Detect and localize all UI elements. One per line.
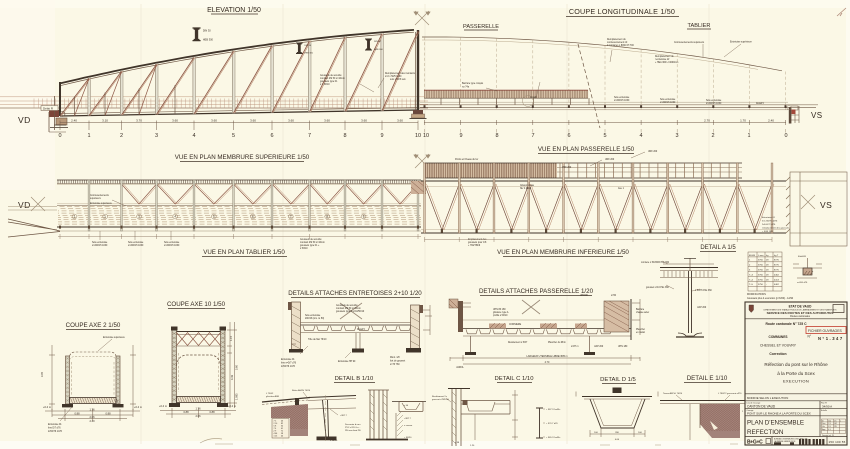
svg-text:3750: 3750 [758,260,764,262]
svg-text:+ 370 7 d76: + 370 7 d76 [546,423,558,425]
svg-text:1: 1 [87,133,90,139]
svg-text:LARGEUR UTENSIBLE LIBRE=685 m: LARGEUR UTENSIBLE LIBRE=685 m [526,355,567,358]
svg-text:EXECUTION: EXECUTION [783,379,809,384]
svg-text:s=2 x 50/5 1400: s=2 x 50/5 1400 [385,76,402,78]
svg-text:60x60/8: 60x60/8 [798,256,807,258]
svg-text:3.60: 3.60 [397,118,403,122]
svg-text:VD: VD [18,200,31,210]
svg-text:3.60: 3.60 [172,118,178,122]
svg-text:fers s=D/7 d76: fers s=D/7 d76 [281,362,297,365]
svg-text:no 74a: no 74a [462,87,470,89]
svg-text:Revêtement s 50/7: Revêtement s 50/7 [508,341,528,344]
svg-text:PVC d 110 L=...: PVC d 110 L=... [345,427,361,429]
svg-text:Contreventements: Contreventements [90,194,110,197]
svg-text:L 50/76 Pds 360: L 50/76 Pds 360 [695,290,712,292]
svg-text:DIN 30: DIN 30 [374,41,382,43]
svg-text:PLAN D’ENSEMBLE: PLAN D’ENSEMBLE [747,420,804,427]
svg-text:3.60: 3.60 [288,118,294,122]
svg-text:2.40: 2.40 [768,118,774,122]
svg-text:5: 5 [232,133,235,139]
svg-text:2.40: 2.40 [71,118,77,122]
svg-text:ELEM: ELEM [749,255,755,257]
svg-text:contreventement inf.: contreventement inf. [607,41,628,44]
svg-text:+387 7: +387 7 [404,418,412,420]
svg-text:+0.4 m: +0.4 m [134,405,142,409]
svg-text:Contreventements supérieurs: Contreventements supérieurs [674,41,705,44]
svg-text:Routes cantonales: Routes cantonales [790,315,811,318]
svg-text:UAP 200: UAP 200 [697,306,707,309]
svg-text:s=200/15 1060: s=200/15 1060 [164,245,180,247]
svg-text:UPROF: UPROF [580,295,589,297]
svg-text:s = 50/10: s = 50/10 [320,84,330,86]
svg-text:CHESSEL ET VOUVRY: CHESSEL ET VOUVRY [760,344,797,348]
svg-text:3.60: 3.60 [324,118,330,122]
svg-text:HEB 300: HEB 300 [374,49,384,51]
svg-text:VUE EN PLAN TABLIER 1/50: VUE EN PLAN TABLIER 1/50 [203,249,285,256]
svg-text:Plancher: Plancher [636,328,645,331]
svg-text:1 25: 1 25 [274,436,278,438]
svg-text:4.43: 4.43 [230,374,234,380]
svg-text:0.88: 0.88 [183,410,189,414]
svg-text:+0.4 m: +0.4 m [159,404,167,408]
svg-text:Entretoise supérieure: Entretoise supérieure [730,41,753,44]
svg-text:+ 365 74 m/Ns: + 365 74 m/Ns [546,437,561,439]
svg-text:+0.4 m: +0.4 m [228,404,236,408]
svg-text:Des: Des [822,423,825,425]
svg-text:0: 0 [58,133,61,139]
svg-text:3750: 3750 [758,284,764,286]
svg-text:App: App [822,428,825,431]
svg-text:+ HEA 300 L=4000mm: + HEA 300 L=4000mm [655,61,678,64]
svg-text:10: 10 [415,133,421,139]
svg-text:s couvre: s couvre [404,424,413,427]
svg-text:3750: 3750 [758,279,764,281]
svg-text:0.88: 0.88 [209,410,215,414]
svg-text:8: 8 [495,133,498,139]
svg-text:Sole entretoise: Sole entretoise [164,241,180,244]
svg-text:4413: 4413 [774,279,780,281]
svg-text:3.60: 3.60 [361,118,367,122]
svg-text:2x50/76 1476: 2x50/76 1476 [48,431,63,433]
svg-text:8770: 8770 [774,260,780,262]
svg-text:Entretoise HP 90: Entretoise HP 90 [338,360,356,363]
svg-text:150 100 55: 150 100 55 [829,440,846,444]
svg-text:Barrière type croquis: Barrière type croquis [462,82,484,85]
svg-text:Sole entretoise: Sole entretoise [92,241,108,244]
svg-text:Remplacement du: Remplacement du [607,38,626,41]
svg-text:Sole entretoise: Sole entretoise [128,241,144,244]
svg-text:2 cornières L 80/40 Pl 700: 2 cornières L 80/40 Pl 700 [607,44,634,47]
svg-text:2.20: 2.20 [89,419,95,423]
svg-text:FICHIER OUVRAGES: FICHIER OUVRAGES [808,329,842,333]
svg-text:HEB 300: HEB 300 [203,39,214,42]
svg-text:Entretoise 01: Entretoise 01 [48,423,62,426]
svg-text:montant 2M 50 s=10mm: montant 2M 50 s=10mm [300,241,325,244]
svg-text:montant 2M 50 s=10mm: montant 2M 50 s=10mm [336,307,361,310]
svg-text:L 750/2: L 750/2 [266,393,274,395]
svg-text:+ 784/784/9: + 784/784/9 [468,245,481,247]
svg-text:0.88: 0.88 [74,411,80,415]
svg-text:Relev ASPH 70/20: Relev ASPH 70/20 [292,389,311,392]
svg-text:COMMUNES: COMMUNES [769,335,788,339]
svg-text:200/15 (sim. to 50): 200/15 (sim. to 50) [305,317,324,320]
svg-text:s=200 d76: s=200 d76 [797,282,808,284]
svg-text:0: 0 [784,133,787,139]
svg-text:Goussets plus d exécution (pl: Goussets plus d exécution (pl 3x50) - 12… [747,297,794,300]
svg-text:Entretoise supérieure: Entretoise supérieure [90,202,113,205]
svg-text:DIN 30: DIN 30 [305,45,312,47]
svg-text:3750: 3750 [758,274,764,276]
svg-text:7: 7 [308,133,311,139]
svg-text:REFECTION: REFECTION [747,429,784,436]
svg-text:Sole entretoise: Sole entretoise [660,98,676,101]
svg-text:Axe 1: Axe 1 [618,187,625,190]
svg-text:10: 10 [423,133,429,139]
svg-text:+ 387 74 m/Ns: + 387 74 m/Ns [546,409,561,411]
svg-text:CANTON DE VAUD: CANTON DE VAUD [747,404,776,408]
svg-text:Détail 5: Détail 5 [756,102,765,105]
svg-text:Remplacement des montants: Remplacement des montants [385,72,416,75]
svg-text:3.10: 3.10 [102,118,108,122]
svg-text:Réfection du pont sur le Rhône: Réfection du pont sur le Rhône [764,362,828,367]
svg-text:URF 200: URF 200 [562,167,572,169]
svg-text:MODIFIE SELON L EXECUTION: MODIFIE SELON L EXECUTION [747,396,788,400]
svg-text:2.70: 2.70 [704,118,710,122]
svg-text:0.88: 0.88 [105,411,111,415]
svg-text:UPN 86 180: UPN 86 180 [493,309,506,311]
svg-text:goussets pour 1/8: goussets pour 1/8 [468,241,487,244]
svg-text:1.083: 1.083 [235,393,239,400]
svg-text:6: 6 [567,133,570,139]
svg-text:DETAIL B 1/10: DETAIL B 1/10 [335,376,374,382]
svg-text:s 58/20: s 58/20 [330,440,338,442]
svg-text:goussets type 01 +: goussets type 01 + [300,244,320,247]
svg-text:Tôle de flan 76/10: Tôle de flan 76/10 [308,339,327,341]
svg-text:Points et Niveau du fer: Points et Niveau du fer [455,158,478,161]
svg-text:HEB 300: HEB 300 [305,52,314,54]
svg-text:suiv s 50/5 suiv: suiv s 50/5 suiv [390,79,407,81]
svg-text:à la Porte du Scex: à la Porte du Scex [777,371,815,376]
svg-text:Route cantonale N° 725 C: Route cantonale N° 725 C [765,322,807,326]
svg-text:+ 50/5 100: + 50/5 100 [762,231,773,233]
svg-text:1: 1 [747,133,750,139]
svg-text:Goussets de sécurité: Goussets de sécurité [300,238,322,241]
svg-text:Goussets de sécurité: Goussets de sécurité [336,304,358,307]
svg-text:8770: 8770 [774,265,780,267]
svg-text:2: 2 [120,133,123,139]
svg-text:URF 200: URF 200 [605,159,615,161]
svg-text:fort de gousset: fort de gousset [390,360,406,363]
svg-text:fers D/7 d76: fers D/7 d76 [48,427,61,430]
svg-text:Détail 5: Détail 5 [357,328,366,331]
svg-text:+0.4 m: +0.4 m [43,405,51,409]
svg-text:6: 6 [270,133,273,139]
svg-text:DETAILS ATTACHES ENTRETOISES 2: DETAILS ATTACHES ENTRETOISES 2+10 1/20 [288,290,422,297]
svg-text:s=50: s=50 [611,295,617,297]
svg-text:DETAIL D 1/5: DETAIL D 1/5 [600,377,636,383]
svg-text:s=200/15 1060: s=200/15 1060 [660,102,676,104]
svg-text:1.15: 1.15 [229,335,233,341]
svg-text:Goussets de sécurité: Goussets de sécurité [320,74,342,77]
svg-text:supérieurs: supérieurs [90,197,102,200]
svg-text:DETAIL C 1/10: DETAIL C 1/10 [495,376,535,382]
svg-text:Sole entretoise: Sole entretoise [614,96,630,99]
svg-text:goussets type A s=10/50/10: goussets type A s=10/50/10 [336,310,365,313]
svg-text:VUE EN PLAN MEMBRURE INFERIEUR: VUE EN PLAN MEMBRURE INFERIEURE 1/50 [497,249,629,256]
svg-text:Entretoise 01: Entretoise 01 [281,358,295,361]
svg-text:7: 7 [531,133,534,139]
svg-text:+387 7: +387 7 [340,415,348,417]
svg-text:TABLIER: TABLIER [688,23,711,29]
svg-text:2x50/76 1476: 2x50/76 1476 [281,366,296,368]
svg-text:3.05: 3.05 [40,371,44,377]
svg-text:4.70: 4.70 [545,361,550,364]
svg-text:Plancher du Rhin: Plancher du Rhin [548,341,566,344]
svg-text:montant 2M 50 s=10mm: montant 2M 50 s=10mm [320,77,345,80]
svg-text:goussets type 01: goussets type 01 [320,80,338,83]
svg-text:VUE EN PLAN MEMBRURE SUPERIEUR: VUE EN PLAN MEMBRURE SUPERIEURE 1/50 [175,154,310,161]
svg-text:3750: 3750 [758,265,764,267]
svg-text:l entretoise inf: l entretoise inf [655,58,670,61]
svg-text:Vu: Vu [834,420,836,422]
svg-text:2.9: 2.9 [828,423,830,425]
svg-text:Débit R: Débit R [43,107,54,111]
svg-text:Ver: Ver [822,425,825,428]
svg-text:3.60: 3.60 [250,118,256,122]
svg-text:1.70: 1.70 [740,118,746,122]
svg-text:5.60: 5.60 [235,364,239,370]
svg-text:s=200/15 1060: s=200/15 1060 [614,100,630,102]
svg-text:Descente d eau: Descente d eau [345,423,361,426]
svg-text:URF 200: URF 200 [648,151,658,153]
svg-text:VUE EN PLAN PASSERELLE 1/50: VUE EN PLAN PASSERELLE 1/50 [538,146,635,153]
svg-text:3.9: 3.9 [828,426,830,428]
svg-text:Sole entretoise: Sole entretoise [706,99,722,102]
svg-text:1.76: 1.76 [195,407,201,411]
svg-text:CORNIERE: CORNIERE [509,324,522,326]
svg-text:4: 4 [192,133,195,139]
svg-text:s 50/10: s 50/10 [300,248,308,250]
svg-text:COUPE AXE 2 1/50: COUPE AXE 2 1/50 [66,322,121,329]
svg-text:UPN 180: UPN 180 [618,346,628,348]
svg-text:3.60: 3.60 [211,118,217,122]
svg-text:40: 40 [281,436,283,438]
svg-text:2.06: 2.06 [89,415,95,419]
svg-text:8: 8 [343,133,346,139]
svg-text:3750: 3750 [758,270,764,272]
svg-text:3: 3 [155,133,158,139]
svg-text:9: 9 [459,133,462,139]
svg-text:Tenue ASPH. 70/20: Tenue ASPH. 70/20 [663,392,683,395]
svg-text:DETAIL E 1/10: DETAIL E 1/10 [687,375,728,382]
svg-text:2.06: 2.06 [195,414,201,418]
svg-text:UAP 200: UAP 200 [594,345,604,348]
svg-text:3.70: 3.70 [136,118,142,122]
svg-text:2: 2 [711,133,714,139]
svg-text:DIN 30: DIN 30 [203,29,211,32]
svg-text:Entretoise 01: Entretoise 01 [762,216,776,219]
svg-text:s: s [840,420,841,422]
svg-text:JAROL: JAROL [456,366,464,369]
svg-text:kg T: kg T [774,255,779,257]
svg-text:s=200/15 1060: s=200/15 1060 [128,245,144,247]
svg-text:VS: VS [811,111,822,120]
svg-text:4: 4 [639,133,642,139]
svg-text:1.76: 1.76 [89,407,95,411]
svg-text:+ 56/20: + 56/20 [404,437,412,439]
svg-text:chapée acier: chapée acier [636,311,649,314]
svg-text:Correction: Correction [769,352,786,356]
svg-text:s=76 760: s=76 760 [390,364,400,366]
svg-text:profilé s 50/10: profilé s 50/10 [493,314,508,317]
svg-text:VD: VD [18,115,31,125]
svg-text:Entretoise supérieure: Entretoise supérieure [103,336,126,339]
svg-text:remplacement des goussets: remplacement des goussets [762,227,790,230]
svg-text:ELEVATION 1/50: ELEVATION 1/50 [207,7,261,14]
svg-text:PE inox fixat PE: PE inox fixat PE [345,429,361,432]
svg-text:L 780/72 gousserie d/70: L 780/72 gousserie d/70 [718,392,742,395]
svg-text:PONT SUR LE RHONE A LA PORTE D: PONT SUR LE RHONE A LA PORTE DU SCEX [747,412,811,416]
svg-text:glissière ASR: glissière ASR [266,395,279,398]
svg-text:glissière type A: glissière type A [493,311,509,314]
svg-text:34/90 A: 34/90 A [822,404,832,408]
svg-text:s=87 m: s=87 m [571,346,579,348]
svg-text:DETAIL A 1/5: DETAIL A 1/5 [700,245,736,251]
svg-text:Echelle: Echelle [821,410,827,412]
svg-text:s=200/15 1060: s=200/15 1060 [706,103,722,105]
svg-text:ETAT DE VAUD: ETAT DE VAUD [789,305,813,309]
svg-text:VS: VS [820,200,832,210]
svg-text:COUPE AXE 10 1/50: COUPE AXE 10 1/50 [167,301,226,308]
svg-text:4462: 4462 [774,284,780,286]
svg-text:L mm: L mm [758,255,764,257]
svg-text:Remplacement de: Remplacement de [655,55,674,58]
svg-text:s=200/15 1060: s=200/15 1060 [92,245,108,247]
svg-text:COUPE LONGITUDINALE 1/50: COUPE LONGITUDINALE 1/50 [569,7,675,16]
svg-text:5: 5 [603,133,606,139]
svg-text:DETAILS ATTACHES PASSERELLE 1/: DETAILS ATTACHES PASSERELLE 1/20 [479,288,594,295]
svg-text:PASSERELLE: PASSERELLE [463,24,499,30]
svg-text:4462: 4462 [774,274,780,276]
svg-text:4.9: 4.9 [828,429,830,431]
svg-text:3: 3 [675,133,678,139]
svg-text:N°1.347: N°1.347 [818,336,844,341]
svg-text:Barrière: Barrière [636,308,645,311]
svg-text:Mont. 1/8: Mont. 1/8 [390,356,400,359]
svg-text:en métal: en métal [636,331,645,334]
svg-text:Glissoir d eau: Glissoir d eau [520,184,535,187]
svg-text:8770: 8770 [774,270,780,272]
svg-text:MODIFICATIONS: MODIFICATIONS [747,293,766,296]
svg-text:Revêtement Vs: Revêtement Vs [432,395,448,398]
svg-text:Niv 4 011/1: Niv 4 011/1 [520,188,532,190]
svg-text:9: 9 [380,133,383,139]
svg-text:2x100/7 1476: 2x100/7 1476 [762,224,776,226]
svg-text:gousset s=10 Pds 360: gousset s=10 Pds 360 [646,286,670,289]
svg-text:fers 80/76 d476: fers 80/76 d476 [762,220,778,223]
svg-text:Sole entretoise: Sole entretoise [305,314,321,317]
